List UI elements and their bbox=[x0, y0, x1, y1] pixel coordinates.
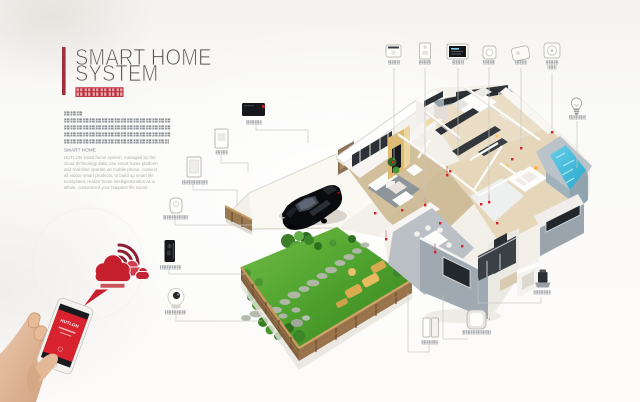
svg-text:cloud technology data, use sma: cloud technology data, use smart home pl… bbox=[64, 161, 158, 166]
svg-text:whole, customized your happies: whole, customized your happiest life sce… bbox=[64, 185, 149, 190]
svg-text:SMART HOME: SMART HOME bbox=[64, 147, 96, 152]
svg-text:HUTLON smart home system, mana: HUTLON smart home system, managed by the bbox=[64, 155, 156, 160]
svg-text:and real-time operate on mobil: and real-time operate on mobile phone, c… bbox=[64, 167, 158, 172]
svg-text:all indoor smart products, to: all indoor smart products, to build up s… bbox=[64, 173, 154, 178]
svg-text:ecosystem, realize home intell: ecosystem, realize home intelligentizati… bbox=[64, 179, 155, 184]
